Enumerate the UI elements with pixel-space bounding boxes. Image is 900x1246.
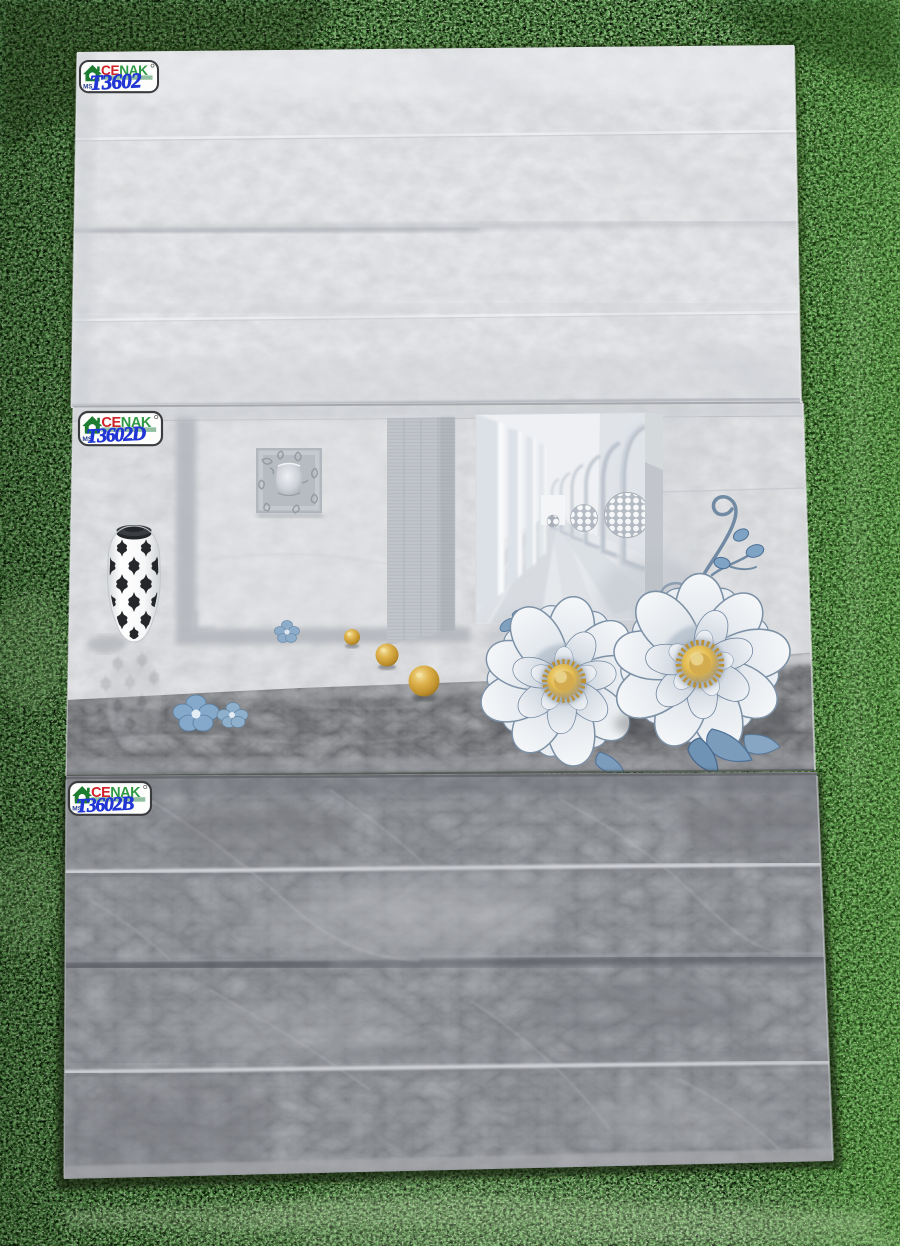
svg-text:T3602B: T3602B [75, 792, 134, 817]
svg-text:T3602D: T3602D [86, 423, 147, 448]
svg-text:T3602: T3602 [89, 68, 142, 95]
